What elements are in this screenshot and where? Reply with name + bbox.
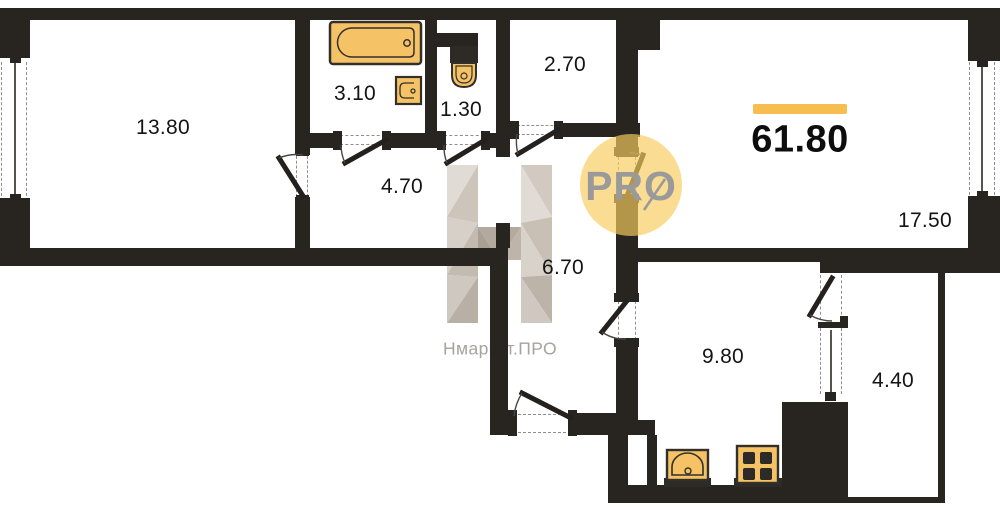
balcony-door-leaf	[810, 278, 832, 315]
bathtub-icon	[330, 22, 421, 64]
kitchen-door-leaf	[602, 302, 626, 332]
wc-door-leaf	[447, 140, 485, 163]
storage-door-leaf	[518, 130, 558, 154]
room-area-label-bedroom: 13.80	[136, 116, 190, 140]
room-area-label-corridor: 6.70	[542, 256, 584, 280]
pro-logo-text: PRO	[585, 163, 677, 209]
entrance-door-leaf	[522, 393, 571, 418]
room-area-label-living-room: 17.50	[898, 209, 952, 233]
room-area-label-wc: 1.30	[440, 98, 482, 122]
bathroom-door-leaf	[345, 140, 386, 163]
room-area-label-storage: 2.70	[544, 53, 586, 77]
room-area-label-kitchen: 9.80	[702, 345, 744, 369]
stove-icon	[734, 446, 782, 487]
bathroom-sink-icon	[396, 77, 421, 104]
toilet-icon	[450, 46, 478, 87]
total-area-accent-bar	[753, 104, 847, 114]
room-area-label-bathroom: 3.10	[334, 82, 376, 106]
floor-plan: Нмаркет.ПРО	[0, 0, 1000, 507]
doors-and-fixtures-layer	[0, 0, 1000, 507]
bedroom-door-leaf	[279, 158, 303, 196]
room-area-label-balcony: 4.40	[872, 369, 914, 393]
pro-logo-watermark: PRO	[580, 134, 682, 236]
total-area-label: 61.80	[751, 119, 849, 162]
room-area-label-hallway: 4.70	[381, 175, 423, 199]
pro-logo-graphic: PRO	[580, 134, 682, 236]
kitchen-sink-icon	[664, 450, 711, 487]
